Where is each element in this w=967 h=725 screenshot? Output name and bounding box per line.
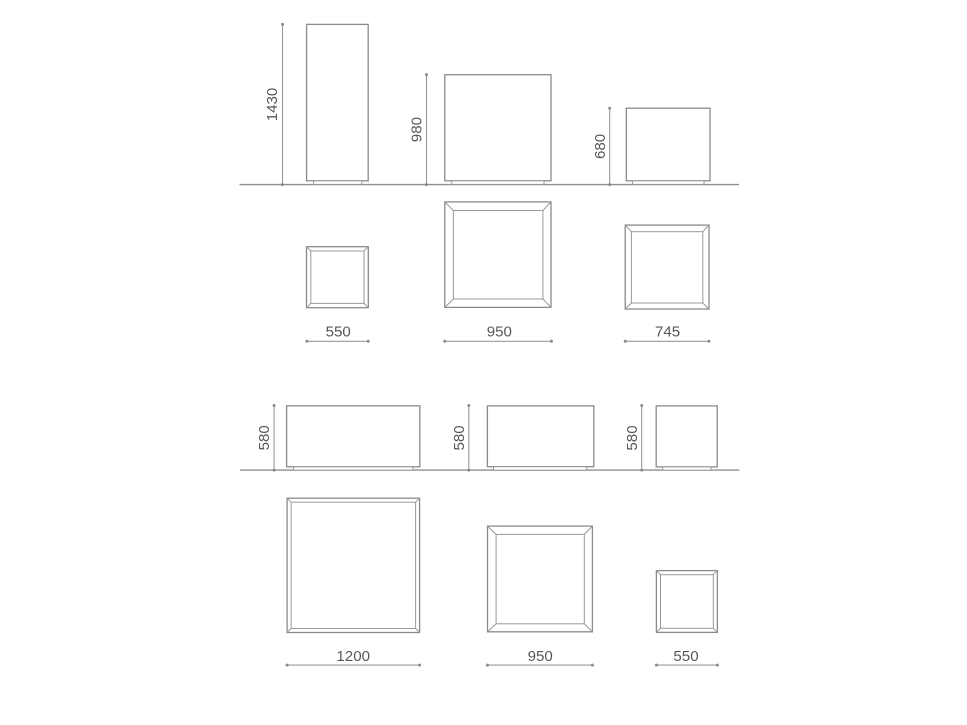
svg-text:550: 550: [326, 324, 351, 341]
svg-text:950: 950: [528, 648, 553, 665]
svg-text:580: 580: [256, 425, 273, 450]
svg-text:680: 680: [592, 134, 609, 159]
svg-text:1430: 1430: [264, 88, 281, 122]
svg-text:550: 550: [673, 648, 698, 665]
svg-text:745: 745: [655, 324, 680, 341]
svg-text:950: 950: [487, 324, 512, 341]
svg-text:580: 580: [624, 425, 641, 450]
svg-text:1200: 1200: [336, 648, 370, 665]
svg-text:580: 580: [451, 425, 468, 450]
svg-text:980: 980: [408, 117, 425, 142]
